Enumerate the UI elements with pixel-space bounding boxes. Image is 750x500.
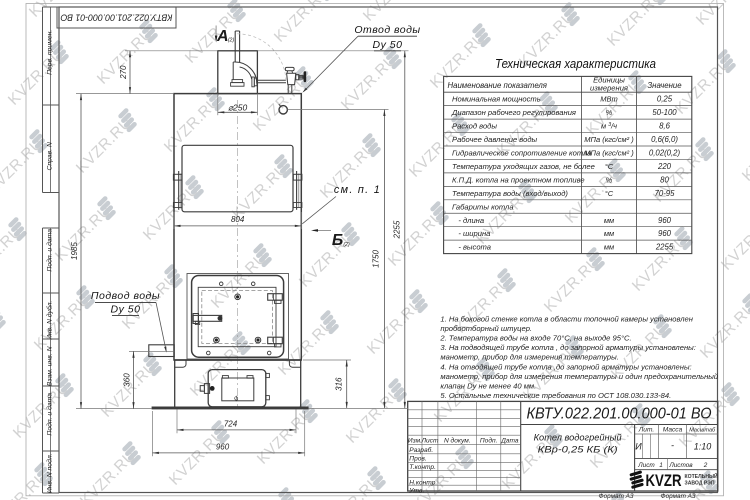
svg-text:Инв. N подл.: Инв. N подл. — [46, 453, 54, 493]
svg-text:КВр-0,25 КБ (К): КВр-0,25 КБ (К) — [538, 445, 618, 456]
svg-text:%: % — [606, 175, 613, 184]
svg-text:KVZR.RU: KVZR.RU — [739, 122, 750, 185]
svg-text:клапан Dy не менее 40 мм.: клапан Dy не менее 40 мм. — [440, 381, 536, 390]
svg-text:5. Остальные технические треб: 5. Остальные технические требования по О… — [440, 391, 671, 400]
svg-text:Масса: Масса — [663, 427, 683, 434]
svg-text:Лист: Лист — [637, 462, 655, 469]
svg-text:960: 960 — [658, 229, 672, 238]
svg-text:МПа (кгс/см² ): МПа (кгс/см² ) — [584, 149, 634, 158]
svg-text:Подп. и дата: Подп. и дата — [46, 393, 54, 436]
svg-text:Масштаб: Масштаб — [689, 428, 716, 434]
svg-text:8,6: 8,6 — [659, 122, 671, 131]
svg-text:Н.контр.: Н.контр. — [409, 480, 437, 487]
svg-text:А: А — [216, 28, 229, 45]
svg-text:°С: °С — [605, 189, 614, 198]
svg-text:220: 220 — [657, 162, 672, 171]
svg-text:Лист: Лист — [421, 438, 439, 445]
svg-text:Дата: Дата — [500, 438, 519, 445]
svg-text:1:10: 1:10 — [694, 442, 712, 452]
svg-text:(2): (2) — [343, 242, 350, 248]
svg-text:2: 2 — [703, 462, 708, 469]
svg-text:Температура воды (вход/выход): Температура воды (вход/выход) — [452, 189, 568, 198]
svg-text:Утв.: Утв. — [408, 487, 424, 494]
svg-text:ø: ø — [231, 393, 241, 403]
svg-text:МПа (кгс/см² ): МПа (кгс/см² ) — [584, 135, 634, 144]
svg-text:960: 960 — [658, 216, 672, 225]
svg-text:Взам. инв. N: Взам. инв. N — [47, 346, 54, 386]
svg-text:Габариты котла: Габариты котла — [452, 202, 514, 211]
svg-text:КОТЕЛЬНЫЙ: КОТЕЛЬНЫЙ — [685, 472, 718, 480]
svg-text:1: 1 — [659, 462, 663, 469]
svg-text:Подп. и дата: Подп. и дата — [46, 229, 54, 272]
svg-text:2255: 2255 — [392, 220, 401, 239]
svg-text:4. На отводящей трубе котла ,: 4. На отводящей трубе котла ,до запорной… — [440, 362, 691, 371]
svg-text:0,25: 0,25 — [657, 95, 673, 104]
svg-text:Т.контр.: Т.контр. — [409, 464, 436, 471]
svg-text:1750: 1750 — [371, 250, 380, 268]
svg-text:см. п. 1: см. п. 1 — [334, 184, 381, 196]
svg-text:0,6(6,0): 0,6(6,0) — [651, 135, 678, 144]
svg-text:манометр, прибор для измерения: манометр, прибор для измерения температу… — [440, 372, 719, 381]
svg-text:Расход воды: Расход воды — [452, 122, 497, 131]
svg-text:70-95: 70-95 — [655, 189, 676, 198]
svg-text:N докум.: N докум. — [444, 437, 471, 445]
svg-text:Отвод воды: Отвод воды — [354, 24, 420, 36]
svg-text:Справ. N: Справ. N — [47, 142, 54, 171]
svg-text:%: % — [606, 108, 613, 117]
svg-text:270: 270 — [119, 65, 128, 80]
svg-text:360: 360 — [122, 373, 131, 387]
svg-text:м 3/ч: м 3/ч — [601, 122, 617, 131]
svg-text:50-100: 50-100 — [652, 108, 677, 117]
svg-text:Техническая характеристика: Техническая характеристика — [495, 56, 656, 71]
svg-text:Формат А3: Формат А3 — [661, 493, 696, 500]
svg-text:1985: 1985 — [70, 242, 79, 260]
svg-text:измерения: измерения — [590, 83, 628, 92]
svg-text:960: 960 — [216, 442, 230, 451]
svg-text:- высота: - высота — [452, 243, 491, 252]
svg-text:2255: 2255 — [655, 243, 674, 252]
svg-text:3. На подводящей трубе котла: 3. На подводящей трубе котла , до запорн… — [440, 343, 695, 352]
svg-text:мм: мм — [604, 229, 614, 238]
svg-text:KVZR.RU: KVZR.RU — [0, 223, 26, 286]
svg-text:Лит.: Лит. — [638, 427, 655, 434]
svg-text:°С: °С — [605, 162, 614, 171]
svg-text:пробоотборный штуцер.: пробоотборный штуцер. — [440, 324, 532, 333]
svg-text:KVZR.RU: KVZR.RU — [718, 211, 750, 274]
svg-text:манометр, прибор для измерения: манометр, прибор для измерения температу… — [440, 353, 618, 362]
svg-text:- длина: - длина — [452, 216, 484, 225]
svg-text:Рабочее давление воды: Рабочее давление воды — [452, 135, 538, 144]
svg-text:KVZR.RU: KVZR.RU — [693, 0, 750, 29]
svg-text:Температура уходящих газов, не: Температура уходящих газов, не более — [452, 162, 595, 171]
svg-text:Формат А3: Формат А3 — [599, 493, 634, 500]
svg-text:(2): (2) — [228, 38, 235, 44]
svg-text:Значение: Значение — [647, 81, 682, 90]
svg-text:Котел водогрейный: Котел водогрейный — [534, 433, 623, 444]
svg-text:Гидравлическое сопротивление к: Гидравлическое сопротивление котла — [452, 149, 592, 158]
svg-text:⌀250: ⌀250 — [228, 103, 248, 113]
svg-text:Б: Б — [332, 232, 343, 249]
svg-text:КВТУ.022.201.00.000-01 ВО: КВТУ.022.201.00.000-01 ВО — [527, 406, 712, 423]
svg-text:Листов: Листов — [668, 462, 693, 469]
svg-text:Dy 50: Dy 50 — [373, 39, 403, 51]
svg-text:Подп.: Подп. — [480, 437, 498, 445]
svg-text:ЗАВОД РЭП: ЗАВОД РЭП — [685, 481, 715, 487]
svg-text:804: 804 — [231, 215, 245, 224]
svg-text:- ширина: - ширина — [452, 229, 490, 238]
svg-text:KVZR.RU: KVZR.RU — [0, 0, 1, 42]
svg-text:Перв. примен.: Перв. примен. — [47, 30, 54, 75]
svg-text:МВт: МВт — [600, 95, 618, 104]
svg-text:И: И — [635, 442, 642, 452]
svg-text:Изм.: Изм. — [408, 438, 422, 445]
svg-text:KVZR: KVZR — [646, 471, 682, 490]
svg-text:Dy 50: Dy 50 — [111, 304, 141, 316]
svg-text:-: - — [671, 441, 674, 451]
svg-text:0,02(0,2): 0,02(0,2) — [649, 149, 681, 158]
svg-text:КВТУ.022.201.00.000-01 ВО: КВТУ.022.201.00.000-01 ВО — [60, 12, 173, 23]
svg-text:Подвод воды: Подвод воды — [91, 290, 160, 302]
svg-text:мм: мм — [604, 216, 614, 225]
svg-text:Пров.: Пров. — [409, 456, 427, 463]
svg-text:80: 80 — [660, 175, 669, 184]
svg-text:724: 724 — [224, 420, 238, 429]
svg-text:Диапазон рабочего регулировани: Диапазон рабочего регулирования — [451, 108, 576, 117]
svg-text:2. Температура воды на входе: 2. Температура воды на входе 70°С, на вы… — [439, 334, 631, 343]
svg-text:Номинальная мощность: Номинальная мощность — [452, 95, 541, 104]
svg-text:Разраб.: Разраб. — [409, 446, 433, 454]
svg-text:мм: мм — [604, 243, 614, 252]
svg-text:316: 316 — [335, 377, 344, 391]
svg-text:Инв. N дубл.: Инв. N дубл. — [46, 301, 54, 340]
svg-text:1. На боковой стенке котла в: 1. На боковой стенке котла в области топ… — [440, 315, 693, 324]
svg-text:К.П.Д. котла на проектном топл: К.П.Д. котла на проектном топливе — [452, 175, 585, 184]
svg-text:KVZR.RU: KVZR.RU — [743, 455, 750, 500]
svg-text:Наименование показателя: Наименование показателя — [448, 81, 548, 90]
